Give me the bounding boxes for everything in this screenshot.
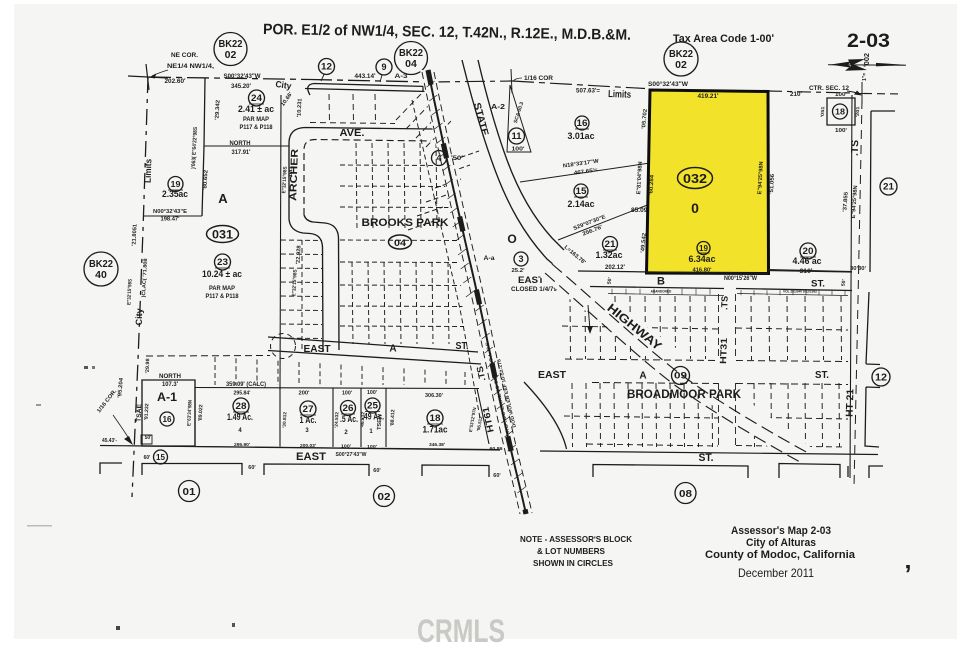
svg-text:1 Ac.: 1 Ac. [300, 415, 317, 425]
svg-text:N00°15ʹ26ʺW: N00°15ʹ26ʺW [724, 275, 757, 282]
svg-text:EAST: EAST [518, 275, 544, 286]
svg-text:50ʹ: 50ʹ [605, 277, 613, 285]
svg-text:21: 21 [605, 239, 616, 249]
svg-text:’: ’ [904, 559, 911, 589]
svg-text:10.24 ± ac: 10.24 ± ac [202, 269, 242, 279]
svg-text:200ʹ: 200ʹ [299, 390, 310, 397]
svg-text:CTR. SEC. 12: CTR. SEC. 12 [809, 85, 849, 92]
svg-text:ʹ29.342: ʹ29.342 [213, 100, 221, 120]
svg-text:032: 032 [683, 171, 707, 186]
svg-text:P117 & P118: P117 & P118 [206, 294, 240, 300]
svg-text:ʹ88.412: ʹ88.412 [389, 409, 397, 427]
svg-text:Limits: Limits [608, 89, 632, 101]
svg-text:ʹ002: ʹ002 [864, 53, 871, 67]
svg-text:19: 19 [699, 244, 709, 253]
svg-text:419.21ʹ: 419.21ʹ [698, 93, 720, 100]
svg-text:HT31: HT31 [718, 338, 729, 364]
svg-text:County of Modoc, California: County of Modoc, California [705, 549, 856, 561]
svg-text:ABANDONED: ABANDONED [651, 290, 672, 294]
svg-text:28: 28 [236, 401, 247, 411]
svg-text:100ʹ: 100ʹ [341, 443, 351, 449]
svg-text:202.12ʹ: 202.12ʹ [605, 264, 626, 271]
svg-text:ʹ51.056: ʹ51.056 [768, 174, 776, 194]
svg-text:Limits: Limits [143, 159, 154, 183]
svg-text:A-2: A-2 [491, 104, 505, 111]
svg-text:100ʹ: 100ʹ [835, 91, 847, 98]
svg-text:NORTH: NORTH [230, 140, 251, 147]
svg-text:15: 15 [576, 186, 587, 196]
svg-text:B: B [657, 276, 665, 288]
svg-text:19: 19 [171, 179, 181, 189]
svg-text:ʹ37.855: ʹ37.855 [841, 192, 849, 212]
svg-text:N00°32ʹ43ʺE: N00°32ʹ43ʺE [153, 208, 187, 215]
svg-text:NORTH: NORTH [159, 374, 181, 380]
svg-text:60ʹ: 60ʹ [248, 464, 256, 471]
svg-text:Eʺ63ʹ34°98N: Eʺ63ʹ34°98N [185, 399, 193, 426]
svg-text:.TS: .TS [719, 296, 729, 310]
svg-text:100ʹ: 100ʹ [342, 390, 352, 397]
svg-text:ST.: ST. [811, 279, 825, 290]
svg-text:S00°32ʹ43ʺW: S00°32ʹ43ʺW [224, 73, 261, 80]
svg-text:ARCHER: ARCHER [288, 148, 301, 201]
svg-text:ST.: ST. [456, 341, 469, 352]
svg-text:25.2ʹ: 25.2ʹ [512, 267, 525, 274]
svg-text:01: 01 [183, 486, 196, 498]
svg-text:NOTE - ASSESSORʹS BLOCK: NOTE - ASSESSORʹS BLOCK [520, 534, 633, 544]
svg-text:2.14ac: 2.14ac [568, 199, 595, 209]
svg-text:16: 16 [163, 415, 173, 424]
svg-text:100ʹ: 100ʹ [835, 127, 847, 134]
svg-text:HT 21: HT 21 [845, 388, 857, 417]
svg-text:ST.: ST. [699, 452, 714, 464]
svg-text:AVE.: AVE. [340, 128, 365, 139]
svg-text:200.03ʹ: 200.03ʹ [300, 442, 316, 448]
svg-text:ʹ60.284: ʹ60.284 [647, 174, 655, 195]
svg-text:A-3: A-3 [395, 73, 408, 80]
svg-text:& LOT NUMBERS: & LOT NUMBERS [537, 546, 605, 556]
svg-text:031: 031 [212, 228, 233, 242]
svg-text:A: A [639, 371, 646, 382]
svg-text:45.43ʹ-: 45.43ʹ- [102, 437, 117, 444]
svg-text:1"=: 1"= [862, 73, 868, 81]
svg-text:EAST: EAST [296, 451, 326, 463]
svg-text:ʹ89.022: ʹ89.022 [197, 404, 205, 422]
svg-text:ʹ29.98: ʹ29.98 [144, 358, 152, 373]
svg-text:ʹ201: ʹ201 [854, 106, 861, 118]
svg-text:ʹ30.812: ʹ30.812 [281, 411, 288, 428]
svg-text:SHOWN IN CIRCLES: SHOWN IN CIRCLES [533, 558, 613, 568]
svg-text:1.71ac: 1.71ac [423, 425, 448, 435]
svg-text:3: 3 [518, 254, 523, 264]
svg-text:50ʹ: 50ʹ [839, 279, 847, 287]
svg-text:6.34ac: 6.34ac [689, 254, 716, 264]
svg-text:1.32ac: 1.32ac [596, 250, 623, 260]
svg-text:202.60ʹ: 202.60ʹ [165, 78, 187, 85]
svg-text:2.35ac: 2.35ac [162, 189, 188, 199]
svg-text:.TS: .TS [850, 139, 862, 156]
svg-text:30ʹ30ʹ: 30ʹ30ʹ [850, 265, 866, 272]
svg-text:NE1/4 NW1/4,: NE1/4 NW1/4, [167, 63, 214, 70]
svg-text:0: 0 [691, 200, 699, 216]
svg-text:PAR MAP: PAR MAP [243, 117, 269, 123]
svg-text:15: 15 [156, 453, 166, 462]
svg-text:1/16 COR: 1/16 COR [524, 75, 553, 82]
svg-text:A: A [389, 344, 396, 355]
svg-text:12: 12 [875, 373, 887, 384]
svg-text:100ʹ: 100ʹ [367, 389, 377, 396]
svg-text:26: 26 [343, 403, 354, 413]
svg-text:City of Alturas: City of Alturas [746, 537, 816, 549]
svg-text:ʹ21.8051: ʹ21.8051 [130, 224, 138, 246]
svg-text:08: 08 [679, 488, 692, 500]
svg-text:BROADMOOR PARK: BROADMOOR PARK [627, 387, 741, 401]
svg-text:A-a: A-a [484, 256, 496, 262]
svg-text:09: 09 [674, 371, 687, 381]
svg-text:27: 27 [303, 404, 314, 414]
svg-text:210ʹ: 210ʹ [790, 91, 803, 98]
svg-text:11: 11 [512, 131, 522, 141]
svg-text:25: 25 [367, 401, 378, 411]
svg-text:O: O [507, 232, 516, 246]
svg-text:2.41 ± ac: 2.41 ± ac [238, 104, 274, 114]
svg-text:21: 21 [883, 182, 894, 192]
svg-text:A: A [218, 191, 228, 206]
svg-text:S00°27ʹ43ʺW: S00°27ʹ43ʺW [336, 451, 368, 458]
svg-text:02: 02 [675, 59, 687, 71]
svg-text:04: 04 [394, 238, 406, 248]
svg-text:18: 18 [835, 107, 845, 117]
svg-text:295.90ʹ: 295.90ʹ [234, 441, 250, 447]
svg-text:ʹ22.928: ʹ22.928 [295, 245, 303, 264]
svg-text:EAST: EAST [304, 344, 331, 355]
svg-text:507.63ʹ=: 507.63ʹ= [576, 88, 600, 95]
svg-text:ʹ24.532: ʹ24.532 [333, 411, 340, 428]
svg-text:ʹ46.512: ʹ46.512 [359, 411, 366, 428]
svg-text:ʹ91.232: ʹ91.232 [143, 403, 151, 421]
svg-text:346.38ʹ: 346.38ʹ [429, 441, 445, 447]
svg-text:VOL 281/340 9/12/1982: VOL 281/340 9/12/1982 [783, 290, 817, 294]
svg-text:295.84ʹ: 295.84ʹ [234, 390, 251, 397]
svg-text:20: 20 [803, 246, 814, 256]
svg-text:40: 40 [95, 269, 107, 281]
svg-text:60ʹ: 60ʹ [373, 467, 381, 474]
svg-text:04: 04 [405, 58, 417, 70]
svg-text:16: 16 [577, 118, 588, 128]
svg-text:23: 23 [217, 257, 228, 267]
svg-text:A-1: A-1 [157, 390, 177, 404]
svg-text:9: 9 [381, 62, 386, 72]
svg-text:EAST: EAST [538, 370, 566, 381]
svg-text:12: 12 [321, 62, 332, 72]
svg-text:PAR MAP: PAR MAP [209, 286, 235, 292]
svg-text:ʹ10.231: ʹ10.231 [296, 98, 304, 117]
svg-text:306.30ʹ: 306.30ʹ [425, 392, 444, 399]
svg-text:345.20ʹ: 345.20ʹ [231, 83, 252, 90]
svg-text:107.3ʹ: 107.3ʹ [162, 381, 179, 388]
svg-text:Assessorʹs Map 2-03: Assessorʹs Map 2-03 [731, 525, 831, 537]
svg-text:60ʹ: 60ʹ [493, 472, 501, 479]
svg-text:4: 4 [436, 153, 441, 163]
svg-text:02: 02 [225, 49, 237, 61]
svg-text:NE COR.: NE COR. [171, 52, 198, 59]
svg-text:December 2011: December 2011 [738, 566, 814, 580]
svg-text:1.49 Ac.: 1.49 Ac. [227, 412, 253, 422]
svg-text:60ʹ: 60ʹ [144, 454, 151, 461]
svg-text:TSEW: TSEW [377, 413, 384, 430]
svg-text:02: 02 [378, 491, 391, 503]
svg-text:ʹ50ʹ: ʹ50ʹ [451, 155, 464, 162]
svg-text:City: City [134, 308, 145, 325]
svg-text:24: 24 [251, 93, 262, 103]
svg-text:50ʹ: 50ʹ [145, 434, 152, 441]
svg-text:CRMLS: CRMLS [417, 613, 505, 646]
svg-text:.5 Ac.: .5 Ac. [340, 414, 358, 424]
svg-text:18: 18 [430, 413, 441, 423]
svg-text:317.91ʹ: 317.91ʹ [232, 149, 251, 156]
svg-text:2-03: 2-03 [847, 30, 890, 52]
svg-text:4.46 ac: 4.46 ac [793, 256, 822, 266]
svg-text:ʹ80.652: ʹ80.652 [201, 170, 209, 190]
svg-text:3.01ac: 3.01ac [568, 131, 595, 141]
svg-text:Eʺ32ʹ15°98S: Eʺ32ʹ15°98S [125, 278, 133, 305]
svg-text:CLOSED 1/4/79: CLOSED 1/4/79 [511, 287, 558, 293]
svg-text:ST.: ST. [815, 370, 829, 381]
svg-text:443.14ʹ: 443.14ʹ [355, 73, 377, 80]
svg-text:S00°32ʹ43ʺW: S00°32ʹ43ʺW [648, 81, 688, 88]
svg-text:P117 & P118: P117 & P118 [240, 125, 274, 131]
svg-text:ʹ051: ʹ051 [819, 106, 826, 118]
svg-text:359.09ʹ (CALC): 359.09ʹ (CALC) [226, 381, 266, 388]
svg-text:198.47ʹ: 198.47ʹ [161, 216, 181, 223]
svg-text:100ʹ: 100ʹ [512, 146, 526, 153]
